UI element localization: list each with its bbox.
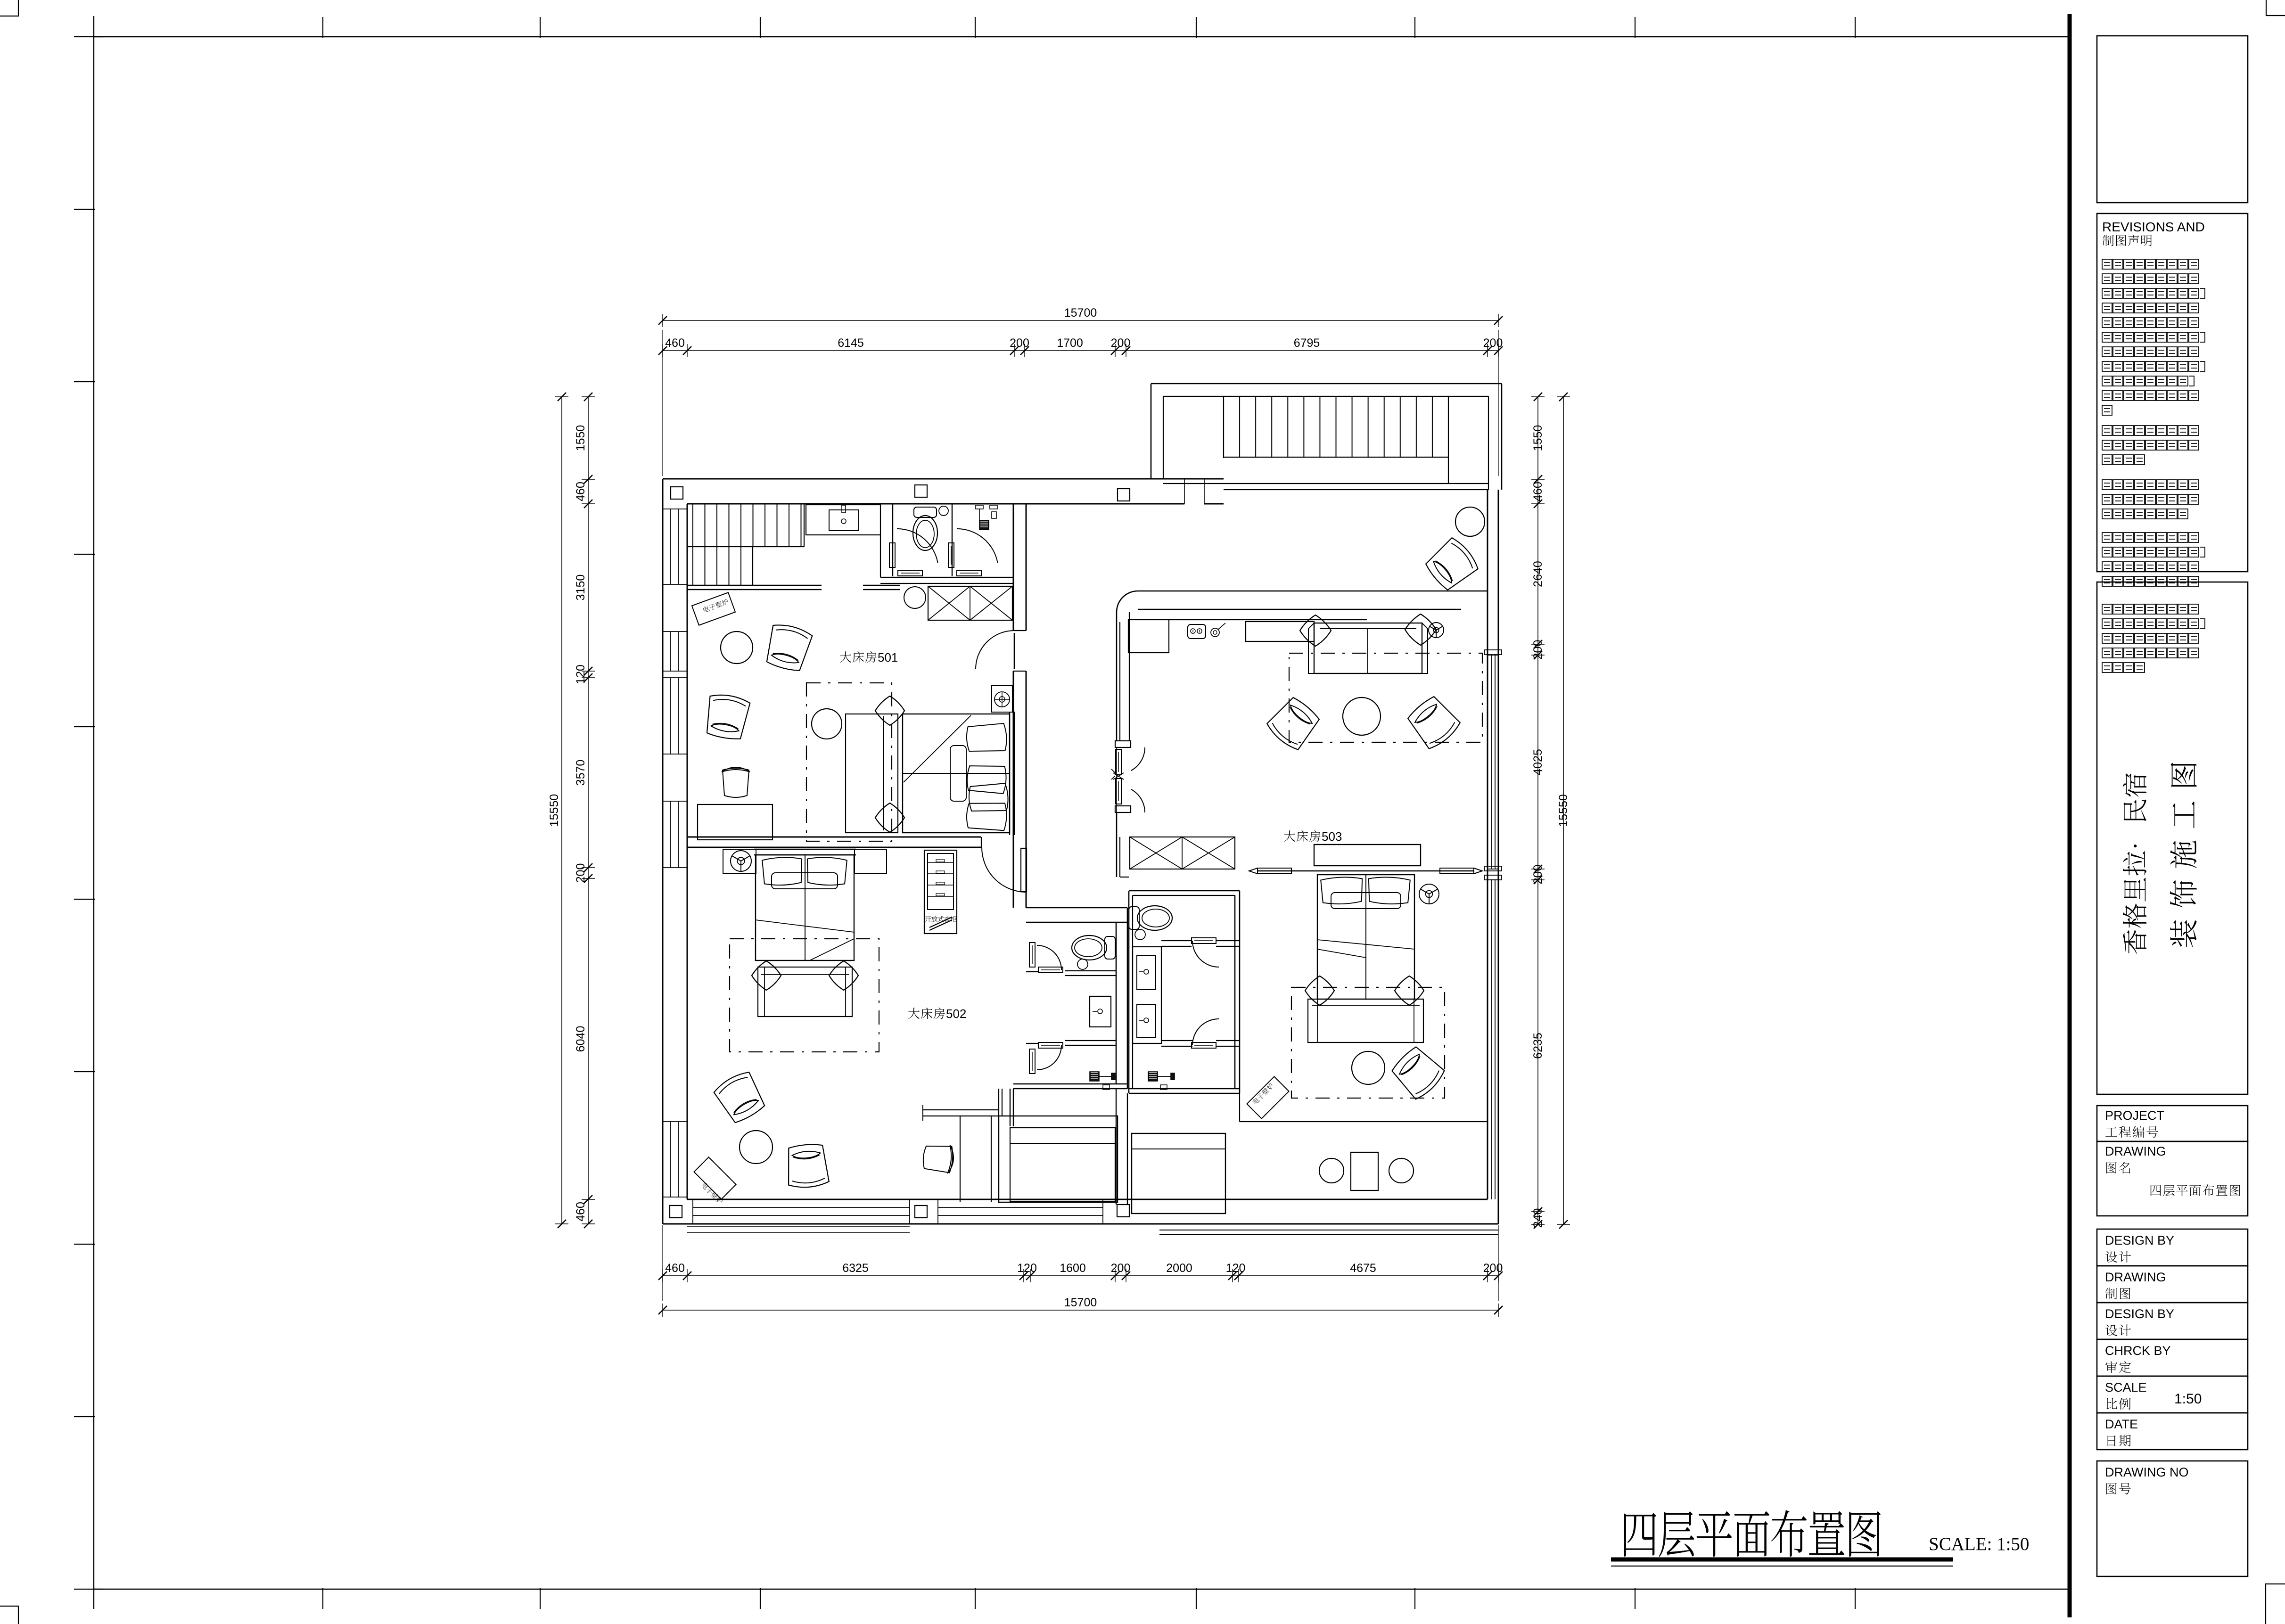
svg-text:200: 200 bbox=[1010, 336, 1029, 350]
svg-text:502: 502 bbox=[946, 1007, 966, 1021]
svg-text:460: 460 bbox=[574, 1202, 587, 1222]
svg-text:15550: 15550 bbox=[548, 794, 561, 827]
svg-text:DRAWING: DRAWING bbox=[2105, 1144, 2166, 1158]
svg-text:1600: 1600 bbox=[1060, 1262, 1086, 1275]
svg-text:200: 200 bbox=[1111, 1262, 1131, 1275]
svg-text:4675: 4675 bbox=[1350, 1262, 1376, 1275]
svg-text:DRAWING NO: DRAWING NO bbox=[2105, 1465, 2189, 1479]
svg-text:3570: 3570 bbox=[574, 760, 587, 786]
svg-text:200: 200 bbox=[1483, 336, 1503, 350]
svg-text:SCALE: SCALE bbox=[2105, 1380, 2147, 1394]
svg-text:460: 460 bbox=[665, 336, 685, 350]
svg-text:15550: 15550 bbox=[1557, 794, 1570, 827]
svg-text:200: 200 bbox=[574, 863, 587, 883]
svg-text:4025: 4025 bbox=[1531, 749, 1545, 775]
svg-text:CHRCK BY: CHRCK BY bbox=[2105, 1344, 2171, 1358]
svg-text:120: 120 bbox=[1226, 1262, 1246, 1275]
svg-text:460: 460 bbox=[1531, 482, 1545, 501]
svg-text:200: 200 bbox=[1531, 640, 1545, 660]
svg-text:120: 120 bbox=[574, 664, 587, 684]
svg-text:6325: 6325 bbox=[842, 1262, 869, 1275]
svg-text:SCALE: 1:50: SCALE: 1:50 bbox=[1929, 1534, 2029, 1554]
svg-text:200: 200 bbox=[1531, 865, 1545, 885]
svg-text:120: 120 bbox=[1017, 1262, 1037, 1275]
svg-text:1550: 1550 bbox=[574, 425, 587, 451]
svg-text:200: 200 bbox=[1483, 1262, 1503, 1275]
svg-text:15700: 15700 bbox=[1064, 306, 1097, 320]
svg-text:PROJECT: PROJECT bbox=[2105, 1108, 2164, 1123]
svg-text:1:50: 1:50 bbox=[2174, 1391, 2202, 1407]
svg-text:15700: 15700 bbox=[1064, 1296, 1097, 1309]
svg-text:3150: 3150 bbox=[574, 574, 587, 601]
svg-text:460: 460 bbox=[665, 1262, 685, 1275]
svg-text:1550: 1550 bbox=[1531, 425, 1545, 451]
svg-text:6795: 6795 bbox=[1294, 336, 1320, 350]
svg-text:503: 503 bbox=[1322, 829, 1342, 844]
svg-text:REVISIONS AND: REVISIONS AND bbox=[2102, 220, 2205, 234]
svg-text:DRAWING: DRAWING bbox=[2105, 1270, 2166, 1284]
svg-text:240: 240 bbox=[1531, 1208, 1545, 1228]
svg-text:2640: 2640 bbox=[1531, 561, 1545, 587]
svg-text:DATE: DATE bbox=[2105, 1417, 2138, 1431]
svg-text:2000: 2000 bbox=[1166, 1262, 1192, 1275]
svg-text:1700: 1700 bbox=[1057, 336, 1083, 350]
svg-text:DESIGN BY: DESIGN BY bbox=[2105, 1233, 2174, 1247]
svg-text:460: 460 bbox=[574, 482, 587, 501]
svg-text:200: 200 bbox=[1111, 336, 1131, 350]
svg-text:501: 501 bbox=[878, 650, 898, 664]
svg-text:6040: 6040 bbox=[574, 1026, 587, 1052]
svg-text:6235: 6235 bbox=[1531, 1033, 1545, 1059]
svg-text:DESIGN BY: DESIGN BY bbox=[2105, 1307, 2174, 1321]
svg-text:6145: 6145 bbox=[838, 336, 864, 350]
